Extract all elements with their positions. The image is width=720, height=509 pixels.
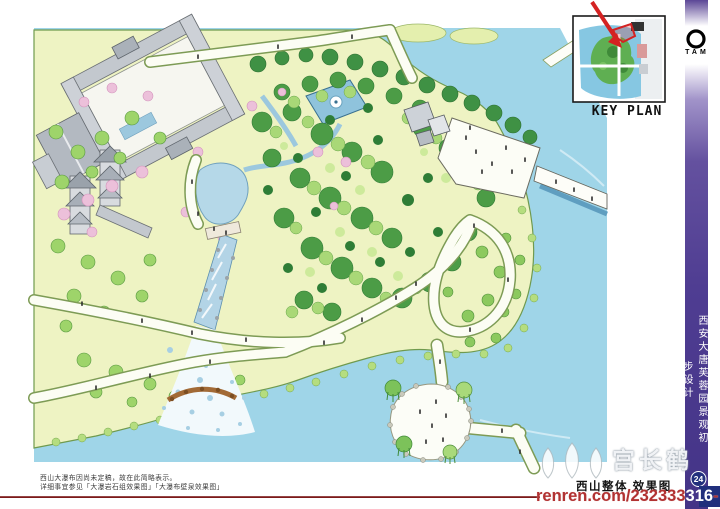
watermark-url: renren.com/232333316-: [536, 487, 719, 506]
tam-logo-ring: [688, 31, 704, 47]
note-line-2: 详细事宜参见「大瀑岩石组效果图」「大瀑布壁泉效果图」: [40, 481, 224, 491]
page-number: 24: [691, 472, 706, 487]
watermark-url-suffix: -: [713, 487, 719, 505]
tam-logo-text: TAM: [683, 49, 711, 56]
watermark-url-highlight: 316: [686, 487, 714, 505]
sidebar-project-title: 西安大唐芙蓉园景观初步设计: [684, 310, 709, 450]
key-plan-label: KEY PLAN: [582, 104, 672, 119]
watermark-url-prefix: renren.com/232333: [536, 487, 686, 505]
site-plan-rendering: [0, 0, 720, 509]
key-plan-inset: [573, 2, 665, 102]
page: { "key_plan": { "label": "KEY PLAN" }, "…: [0, 0, 720, 509]
footer-rule: [0, 496, 540, 498]
watermark-brand: 宫长鹤: [612, 441, 693, 475]
